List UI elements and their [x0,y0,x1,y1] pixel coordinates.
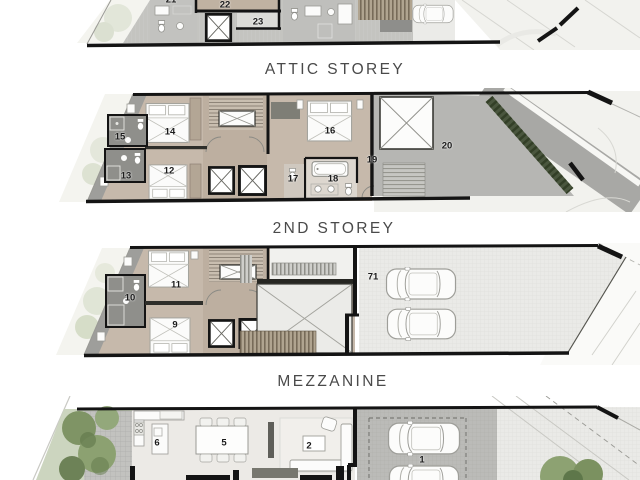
room-number-15: 15 [115,132,126,142]
attic-storey-plan [0,0,640,50]
car-icon [413,0,455,43]
room-number-20: 20 [442,141,453,151]
room-number-6: 6 [154,438,159,448]
room-number-1: 1 [419,455,424,465]
room-number-71: 71 [368,272,379,282]
elevator-icon [206,14,230,40]
corridor-wall [145,301,207,305]
room-number-14: 14 [165,127,176,137]
room-number-22: 22 [220,0,231,10]
room-number-13: 13 [121,171,132,181]
storey-label-second: 2ND STOREY [273,220,396,238]
first-storey-plan [0,396,640,480]
room-number-23: 23 [253,17,264,27]
bedroom-9 [150,318,190,354]
room-number-21: 21 [166,0,177,5]
room-number-5: 5 [221,438,226,448]
floorplan-sheet: ATTIC STOREY 2ND STOREY MEZZANINE 21 22 … [0,0,640,480]
mezzanine-stair-hatch [240,331,316,354]
room-number-17: 17 [288,174,299,184]
corridor-wall [145,146,207,149]
storey-label-mezzanine: MEZZANINE [277,373,388,391]
room-number-18: 18 [328,174,339,184]
attic-room-22-floor [197,0,278,11]
room-number-12: 12 [164,166,175,176]
storey-label-attic: ATTIC STOREY [265,61,405,79]
room-number-16: 16 [325,126,336,136]
skylight [380,97,433,149]
room-number-10: 10 [125,293,136,303]
room-number-19: 19 [367,155,378,165]
mezzanine-plan [0,243,640,365]
bedroom-12 [149,164,201,199]
terrace-stair [383,163,425,196]
room-number-2: 2 [306,441,311,451]
room-number-9: 9 [172,320,177,330]
room-number-11: 11 [171,280,181,290]
car-icon [389,421,460,480]
second-storey-plan [0,88,640,212]
